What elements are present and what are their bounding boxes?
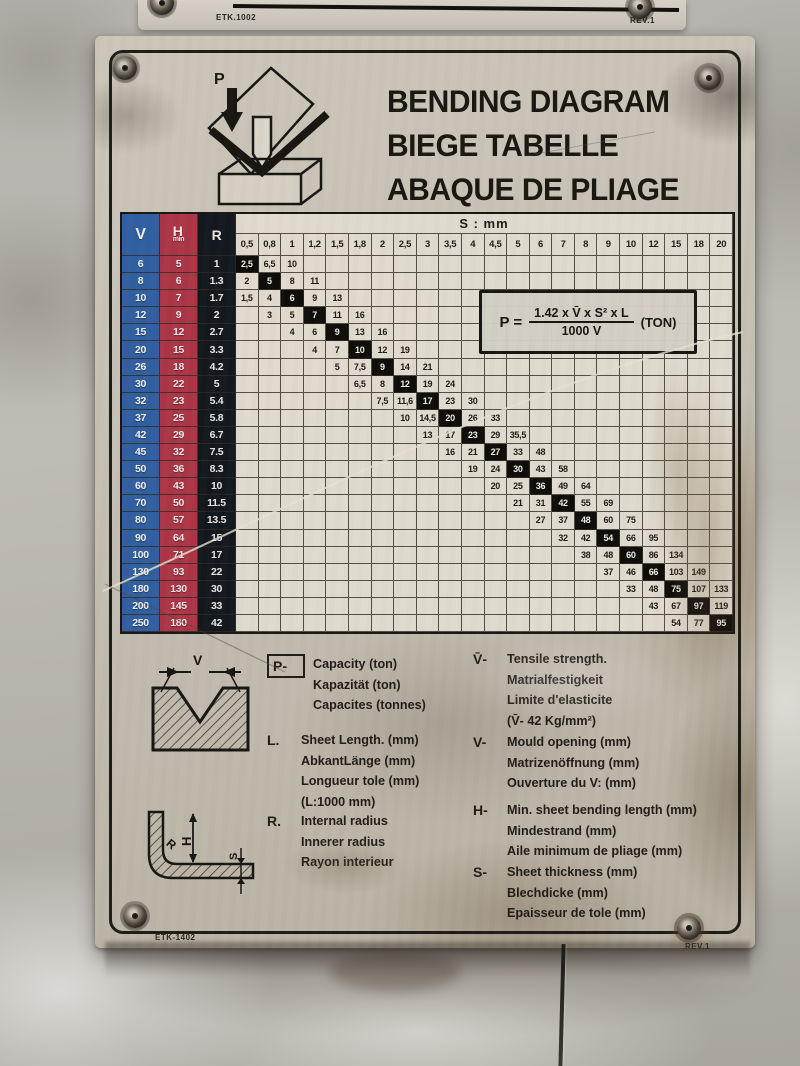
legend-symbol: H- <box>473 800 499 862</box>
tonnage-cell: 11 <box>326 307 349 324</box>
empty-cell <box>326 547 349 564</box>
empty-cell <box>372 495 395 512</box>
empty-cell <box>688 410 711 427</box>
legend-symbol: R. <box>267 811 293 873</box>
empty-cell <box>485 615 508 632</box>
tonnage-cell: 49 <box>552 478 575 495</box>
empty-cell <box>349 410 372 427</box>
empty-cell <box>597 615 620 632</box>
empty-cell <box>236 598 259 615</box>
tonnage-cell: 8 <box>372 376 395 393</box>
empty-cell <box>485 393 508 410</box>
min-bend-length-value: 50 <box>160 495 198 512</box>
empty-cell <box>417 564 440 581</box>
empty-cell <box>326 256 349 273</box>
tonnage-cell: 30 <box>462 393 485 410</box>
empty-cell <box>326 478 349 495</box>
tonnage-cell: 31 <box>530 495 553 512</box>
tonnage-cell: 48 <box>597 547 620 564</box>
tonnage-cell: 9 <box>372 359 395 376</box>
internal-radius-value: 15 <box>198 530 236 547</box>
tonnage-cell: 67 <box>665 598 688 615</box>
empty-cell <box>688 512 711 529</box>
empty-cell <box>710 547 733 564</box>
sheet-thickness-column-header: 1,8 <box>349 234 372 256</box>
internal-radius-value: 1 <box>198 256 236 273</box>
empty-cell <box>281 512 304 529</box>
empty-cell <box>643 478 666 495</box>
empty-cell <box>417 273 440 290</box>
empty-cell <box>259 461 282 478</box>
tonnage-cell: 6,5 <box>349 376 372 393</box>
legend-symbol: P- <box>267 654 305 678</box>
empty-cell <box>236 359 259 376</box>
tonnage-cell: 149 <box>688 564 711 581</box>
empty-cell <box>236 410 259 427</box>
empty-cell <box>304 444 327 461</box>
empty-cell <box>710 341 733 358</box>
empty-cell <box>462 478 485 495</box>
internal-radius-value: 33 <box>198 598 236 615</box>
legend-symbol: S- <box>473 862 499 924</box>
empty-cell <box>688 495 711 512</box>
empty-cell <box>281 410 304 427</box>
empty-cell <box>281 530 304 547</box>
min-bend-length-value: 25 <box>160 410 198 427</box>
legend-line: Aile minimum de pliage (mm) <box>507 841 697 862</box>
empty-cell <box>304 359 327 376</box>
min-bend-length-value: 130 <box>160 581 198 598</box>
empty-cell <box>394 273 417 290</box>
empty-cell <box>236 478 259 495</box>
sheet-thickness-column-header: 9 <box>597 234 620 256</box>
tonnage-cell: 43 <box>530 461 553 478</box>
empty-cell <box>597 359 620 376</box>
empty-cell <box>507 615 530 632</box>
empty-cell <box>304 512 327 529</box>
empty-cell <box>597 256 620 273</box>
empty-cell <box>462 547 485 564</box>
empty-cell <box>552 444 575 461</box>
die-opening-icon: V <box>147 652 257 756</box>
empty-cell <box>394 324 417 341</box>
empty-cell <box>326 410 349 427</box>
tonnage-cell: 64 <box>575 478 598 495</box>
min-bend-length-value: 22 <box>160 376 198 393</box>
empty-cell <box>439 359 462 376</box>
tonnage-cell: 24 <box>485 461 508 478</box>
empty-cell <box>507 359 530 376</box>
column-header-h-min: Hmin <box>160 214 198 256</box>
empty-cell <box>710 427 733 444</box>
tonnage-cell: 19 <box>394 341 417 358</box>
die-opening-value: 200 <box>122 598 160 615</box>
empty-cell <box>236 547 259 564</box>
tonnage-cell: 23 <box>462 427 485 444</box>
tonnage-cell: 25 <box>507 478 530 495</box>
internal-radius-value: 10 <box>198 478 236 495</box>
empty-cell <box>643 615 666 632</box>
empty-cell <box>439 307 462 324</box>
empty-cell <box>462 581 485 598</box>
formula-denominator: 1000 V <box>529 323 634 338</box>
empty-cell <box>665 461 688 478</box>
sheet-thickness-column-header: 6 <box>530 234 553 256</box>
die-opening-value: 20 <box>122 341 160 358</box>
tonnage-cell: 10 <box>281 256 304 273</box>
empty-cell <box>575 273 598 290</box>
die-opening-value: 6 <box>122 256 160 273</box>
empty-cell <box>710 410 733 427</box>
tonnage-cell: 32 <box>552 530 575 547</box>
min-bend-length-value: 12 <box>160 324 198 341</box>
sheet-thickness-column-header: 12 <box>643 234 666 256</box>
tonnage-cell: 48 <box>530 444 553 461</box>
empty-cell <box>394 307 417 324</box>
tonnage-cell: 7,5 <box>349 359 372 376</box>
empty-cell <box>665 512 688 529</box>
empty-cell <box>530 427 553 444</box>
die-opening-value: 90 <box>122 530 160 547</box>
tonnage-cell: 27 <box>485 444 508 461</box>
min-bend-length-value: 6 <box>160 273 198 290</box>
empty-cell <box>236 444 259 461</box>
empty-cell <box>281 393 304 410</box>
min-bend-length-value: 7 <box>160 290 198 307</box>
empty-cell <box>326 615 349 632</box>
tonnage-cell: 46 <box>620 564 643 581</box>
empty-cell <box>530 547 553 564</box>
tonnage-cell: 12 <box>372 341 395 358</box>
empty-cell <box>552 427 575 444</box>
empty-cell <box>349 393 372 410</box>
tonnage-cell: 9 <box>326 324 349 341</box>
empty-cell <box>259 324 282 341</box>
empty-cell <box>372 444 395 461</box>
empty-cell <box>597 461 620 478</box>
empty-cell <box>394 581 417 598</box>
tonnage-cell: 26 <box>462 410 485 427</box>
tonnage-cell: 20 <box>439 410 462 427</box>
title-line: ABAQUE DE PLIAGE <box>387 168 747 214</box>
empty-cell <box>394 478 417 495</box>
sheet-thickness-column-header: 0,5 <box>236 234 259 256</box>
empty-cell <box>688 376 711 393</box>
h-min-stack: Hmin <box>173 226 185 244</box>
tonnage-cell: 58 <box>552 461 575 478</box>
empty-cell <box>462 273 485 290</box>
legend-line: Matrizenöffnung (mm) <box>507 753 639 774</box>
empty-cell <box>281 444 304 461</box>
empty-cell <box>417 581 440 598</box>
empty-cell <box>485 512 508 529</box>
tonnage-cell: 17 <box>439 427 462 444</box>
empty-cell <box>462 564 485 581</box>
tonnage-cell: 133 <box>710 581 733 598</box>
tonnage-cell: 33 <box>507 444 530 461</box>
empty-cell <box>417 478 440 495</box>
empty-cell <box>620 598 643 615</box>
internal-radius-value: 22 <box>198 564 236 581</box>
die-opening-value: 250 <box>122 615 160 632</box>
sheet-thickness-column-header: 4 <box>462 234 485 256</box>
empty-cell <box>530 359 553 376</box>
tonnage-cell: 5 <box>326 359 349 376</box>
empty-cell <box>417 495 440 512</box>
empty-cell <box>394 598 417 615</box>
empty-cell <box>394 512 417 529</box>
die-opening-value: 26 <box>122 359 160 376</box>
empty-cell <box>281 427 304 444</box>
tonnage-cell: 19 <box>462 461 485 478</box>
empty-cell <box>485 598 508 615</box>
empty-cell <box>485 376 508 393</box>
empty-cell <box>665 444 688 461</box>
empty-cell <box>552 256 575 273</box>
tonnage-cell: 95 <box>643 530 666 547</box>
empty-cell <box>710 393 733 410</box>
sheet-thickness-column-header: 0,8 <box>259 234 282 256</box>
empty-cell <box>507 581 530 598</box>
empty-cell <box>372 581 395 598</box>
empty-cell <box>394 547 417 564</box>
tonnage-cell: 42 <box>552 495 575 512</box>
empty-cell <box>417 530 440 547</box>
empty-cell <box>259 410 282 427</box>
empty-cell <box>485 273 508 290</box>
empty-cell <box>372 307 395 324</box>
empty-cell <box>417 547 440 564</box>
tonnage-cell: 2 <box>236 273 259 290</box>
die-opening-value: 10 <box>122 290 160 307</box>
empty-cell <box>259 598 282 615</box>
empty-cell <box>349 256 372 273</box>
tonnage-cell: 20 <box>485 478 508 495</box>
empty-cell <box>597 273 620 290</box>
tonnage-cell: 16 <box>349 307 372 324</box>
empty-cell <box>710 307 733 324</box>
empty-cell <box>281 461 304 478</box>
empty-cell <box>236 324 259 341</box>
tonnage-cell: 19 <box>417 376 440 393</box>
empty-cell <box>281 564 304 581</box>
empty-cell <box>507 256 530 273</box>
sheet-thickness-column-header: 7 <box>552 234 575 256</box>
empty-cell <box>417 324 440 341</box>
empty-cell <box>688 427 711 444</box>
empty-cell <box>620 256 643 273</box>
empty-cell <box>394 290 417 307</box>
empty-cell <box>417 598 440 615</box>
empty-cell <box>530 256 553 273</box>
empty-cell <box>439 290 462 307</box>
internal-radius-value: 5.8 <box>198 410 236 427</box>
die-opening-value: 30 <box>122 376 160 393</box>
empty-cell <box>462 615 485 632</box>
tonnage-cell: 12 <box>394 376 417 393</box>
empty-cell <box>575 564 598 581</box>
tonnage-cell: 38 <box>575 547 598 564</box>
empty-cell <box>575 410 598 427</box>
empty-cell <box>372 461 395 478</box>
empty-cell <box>597 444 620 461</box>
empty-cell <box>439 598 462 615</box>
formula-unit: (TON) <box>641 315 677 330</box>
empty-cell <box>485 495 508 512</box>
min-bend-length-value: 180 <box>160 615 198 632</box>
empty-cell <box>326 461 349 478</box>
formula-fraction: 1.42 x V̄ x S² x L 1000 V <box>529 306 634 339</box>
empty-cell <box>552 393 575 410</box>
die-opening-value: 80 <box>122 512 160 529</box>
min-bend-length-value: 64 <box>160 530 198 547</box>
tonnage-cell: 43 <box>643 598 666 615</box>
tonnage-cell: 16 <box>372 324 395 341</box>
legend-symbol: L. <box>267 730 293 812</box>
empty-cell <box>620 615 643 632</box>
legend-line: Kapazität (ton) <box>313 675 426 696</box>
empty-cell <box>281 598 304 615</box>
sheet-thickness-column-header: 3,5 <box>439 234 462 256</box>
tonnage-cell: 29 <box>485 427 508 444</box>
tonnage-cell: 119 <box>710 598 733 615</box>
sheet-thickness-column-header: 18 <box>688 234 711 256</box>
tonnage-cell: 69 <box>597 495 620 512</box>
empty-cell <box>665 393 688 410</box>
empty-cell <box>552 359 575 376</box>
tonnage-cell: 37 <box>552 512 575 529</box>
empty-cell <box>710 461 733 478</box>
empty-cell <box>281 341 304 358</box>
empty-cell <box>530 530 553 547</box>
empty-cell <box>439 564 462 581</box>
empty-cell <box>462 359 485 376</box>
empty-cell <box>304 478 327 495</box>
thickness-label: S <box>228 853 240 860</box>
empty-cell <box>688 547 711 564</box>
empty-cell <box>236 495 259 512</box>
empty-cell <box>394 444 417 461</box>
internal-radius-value: 1.3 <box>198 273 236 290</box>
legend-line: Sheet Length. (mm) <box>301 730 419 751</box>
die-opening-value: 12 <box>122 307 160 324</box>
min-bend-length-value: 57 <box>160 512 198 529</box>
tonnage-cell: 6,5 <box>259 256 282 273</box>
empty-cell <box>394 530 417 547</box>
empty-cell <box>349 564 372 581</box>
sheet-thickness-column-header: 8 <box>575 234 598 256</box>
empty-cell <box>485 256 508 273</box>
die-opening-value: 32 <box>122 393 160 410</box>
empty-cell <box>552 564 575 581</box>
title-line: BENDING DIAGRAM <box>387 80 747 126</box>
empty-cell <box>597 598 620 615</box>
min-bend-length-value: 29 <box>160 427 198 444</box>
tonnage-cell: 95 <box>710 615 733 632</box>
empty-cell <box>439 256 462 273</box>
empty-cell <box>326 273 349 290</box>
empty-cell <box>665 530 688 547</box>
die-opening-value: 130 <box>122 564 160 581</box>
empty-cell <box>236 307 259 324</box>
empty-cell <box>326 512 349 529</box>
empty-cell <box>259 393 282 410</box>
empty-cell <box>394 495 417 512</box>
empty-cell <box>665 256 688 273</box>
tonnage-cell: 14 <box>394 359 417 376</box>
legend-line: (L:1000 mm) <box>301 792 419 813</box>
legend-line: AbkantLänge (mm) <box>301 751 419 772</box>
empty-cell <box>326 530 349 547</box>
empty-cell <box>236 393 259 410</box>
empty-cell <box>507 547 530 564</box>
empty-cell <box>530 393 553 410</box>
legend-line: Capacites (tonnes) <box>313 695 426 716</box>
internal-radius-value: 13.5 <box>198 512 236 529</box>
tonnage-cell: 33 <box>620 581 643 598</box>
empty-cell <box>552 273 575 290</box>
empty-cell <box>462 530 485 547</box>
empty-cell <box>597 393 620 410</box>
tonnage-cell: 6 <box>281 290 304 307</box>
tonnage-cell: 103 <box>665 564 688 581</box>
corner-screw-icon <box>123 904 147 928</box>
empty-cell <box>688 273 711 290</box>
empty-cell <box>281 581 304 598</box>
empty-cell <box>597 376 620 393</box>
empty-cell <box>507 512 530 529</box>
min-bend-length-value: 43 <box>160 478 198 495</box>
sheet-thickness-column-header: 2,5 <box>394 234 417 256</box>
empty-cell <box>439 530 462 547</box>
internal-radius-value: 2.7 <box>198 324 236 341</box>
empty-cell <box>259 341 282 358</box>
corner-screw-icon <box>113 56 137 80</box>
empty-cell <box>349 273 372 290</box>
empty-cell <box>552 598 575 615</box>
legend-lines: Tensile strength.MatrialfestigkeitLimite… <box>507 649 616 731</box>
empty-cell <box>507 564 530 581</box>
empty-cell <box>665 410 688 427</box>
sheet-thickness-column-header: 10 <box>620 234 643 256</box>
empty-cell <box>304 393 327 410</box>
upper-plate-edge: ETK.1002 REV.1 <box>138 0 686 30</box>
empty-cell <box>372 427 395 444</box>
empty-cell <box>643 512 666 529</box>
min-bend-length-value: 32 <box>160 444 198 461</box>
empty-cell <box>417 256 440 273</box>
legend-line: Sheet thickness (mm) <box>507 862 646 883</box>
legend-line: Internal radius <box>301 811 393 832</box>
legend-item: R.Internal radiusInnerer radiusRayon int… <box>267 811 396 873</box>
empty-cell <box>688 256 711 273</box>
internal-radius-value: 30 <box>198 581 236 598</box>
empty-cell <box>710 444 733 461</box>
empty-cell <box>304 581 327 598</box>
legend-item: V̄-Tensile strength.MatrialfestigkeitLim… <box>473 649 616 731</box>
empty-cell <box>439 341 462 358</box>
empty-cell <box>236 427 259 444</box>
empty-cell <box>417 444 440 461</box>
empty-cell <box>281 359 304 376</box>
tonnage-cell: 10 <box>349 341 372 358</box>
empty-cell <box>372 547 395 564</box>
empty-cell <box>259 478 282 495</box>
tonnage-cell: 27 <box>530 512 553 529</box>
wall-grime-band <box>105 942 750 978</box>
empty-cell <box>530 273 553 290</box>
empty-cell <box>304 564 327 581</box>
